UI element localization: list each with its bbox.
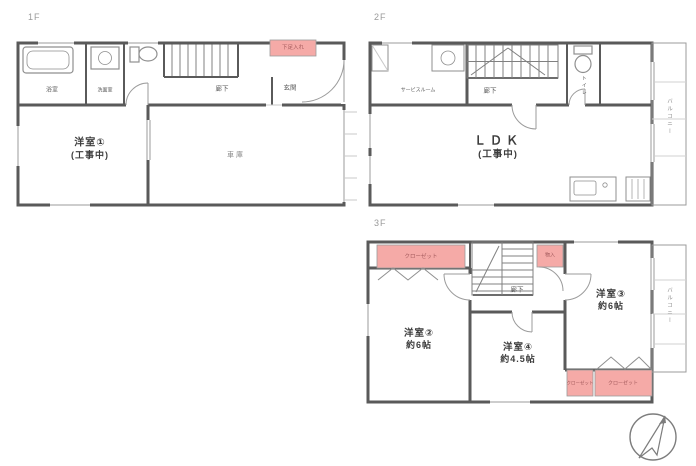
room-label-closet-wide: クローゼット <box>608 381 638 387</box>
room-label-corridor-2f: 廊下 <box>484 87 497 94</box>
room-label-western-room4-size: 約4.5帖 <box>500 355 536 365</box>
f1-stairs-icon <box>172 45 228 77</box>
room-label-closet-top: クローゼット <box>404 254 437 260</box>
room-label-toilet: トイレ <box>580 76 586 97</box>
room-label-western-room2: 洋室② <box>404 329 434 339</box>
f1-garage-front <box>341 110 357 202</box>
room-label-storage: 物入 <box>545 253 555 259</box>
f2-door-arcs <box>512 89 585 129</box>
room-label-ldk: ＬＤＫ <box>474 134 522 147</box>
room-label-western-room1-note: (工事中) <box>71 151 109 161</box>
room-label-western-room3: 洋室③ <box>596 290 626 300</box>
room-label-corridor-3f: 廊下 <box>511 286 524 293</box>
f3-stairs-icon <box>472 242 533 295</box>
room-label-closet-small: クローゼット <box>567 382 594 387</box>
floorplan-1f: 1F <box>14 14 364 214</box>
f1-entrance-door-icon <box>302 60 347 104</box>
room-label-western-room4: 洋室④ <box>503 343 533 353</box>
room-label-balcony-3f: バルコニー <box>666 287 672 325</box>
room-label-bathroom: 浴室 <box>46 88 58 95</box>
room-label-ldk-note: (工事中) <box>478 150 518 160</box>
f1-door-arc <box>126 83 148 105</box>
compass-icon <box>618 404 688 466</box>
floorplan-3f-drawing <box>362 218 696 414</box>
toilet-icon <box>130 47 139 62</box>
room-label-entrance: 玄関 <box>284 84 297 91</box>
floorplan-2f-drawing <box>362 14 696 214</box>
floorplan-1f-drawing <box>14 14 364 214</box>
floorplan-2f: 2F <box>362 14 696 214</box>
room-label-shoe-cupboard: 下足入れ <box>282 45 304 51</box>
room-label-garage: 車庫 <box>227 152 245 160</box>
room-label-service-room: サービスルーム <box>401 88 436 94</box>
room-label-washroom: 洗面室 <box>97 88 112 94</box>
floorplan-page: 1F <box>0 0 696 466</box>
f2-stairs-icon <box>467 45 558 78</box>
room-label-corridor-1f: 廊下 <box>216 85 229 92</box>
room-label-western-room2-size: 約6帖 <box>406 341 432 351</box>
room-label-western-room3-size: 約6帖 <box>598 302 624 312</box>
room-label-balcony-2f: バルコニー <box>666 98 672 136</box>
f2-toilet-icon <box>574 46 592 73</box>
room-label-western-room1: 洋室① <box>74 138 105 149</box>
floorplan-3f: 3F <box>362 218 696 414</box>
